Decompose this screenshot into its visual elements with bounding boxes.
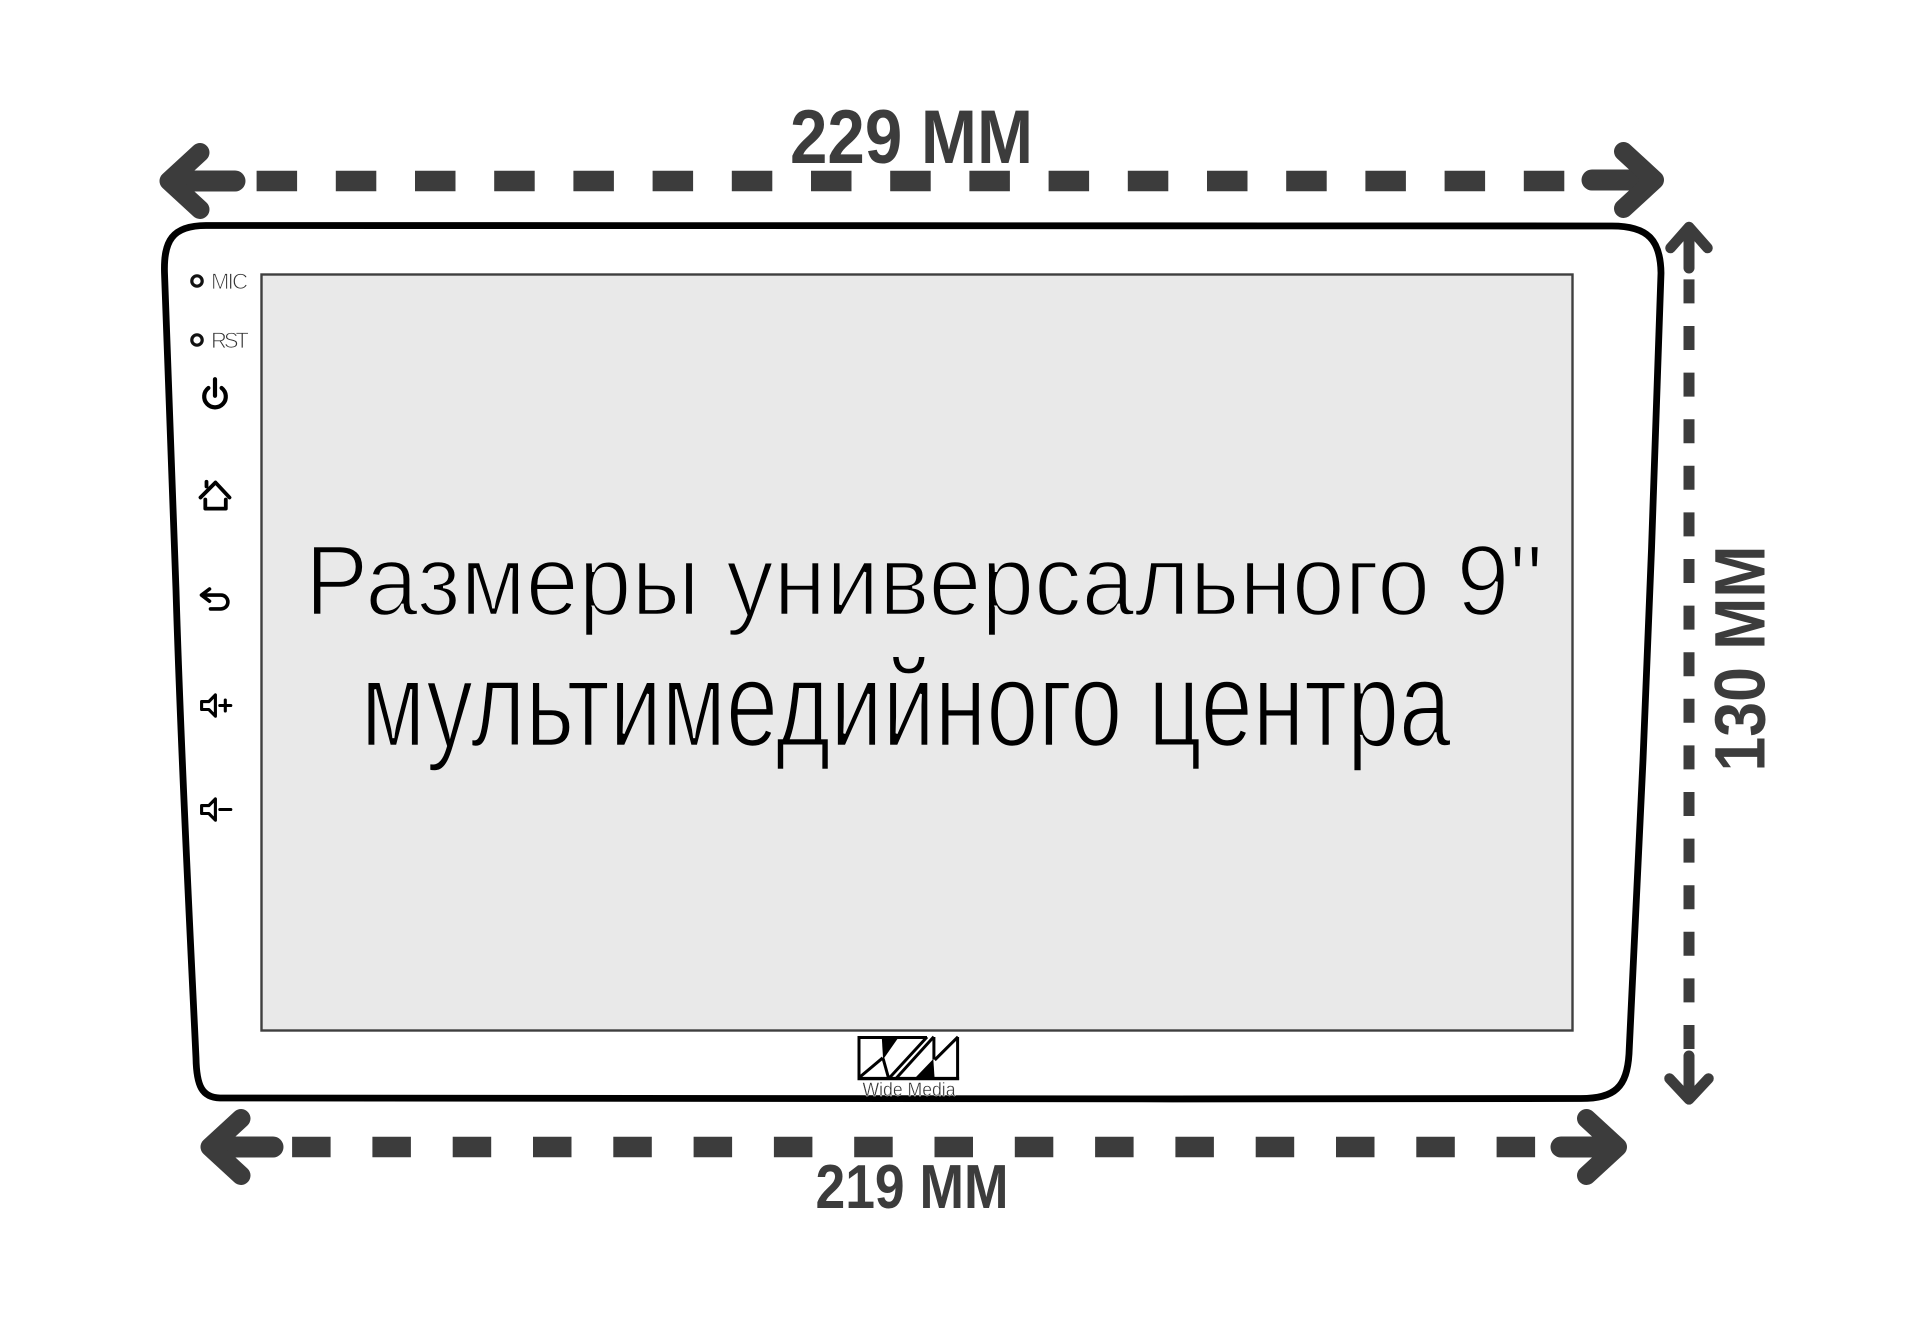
svg-text:219 MM: 219 MM [816,1153,1009,1222]
svg-text:мультимедийного центра: мультимедийного центра [361,636,1451,772]
svg-text:MIC: MIC [211,269,248,294]
svg-text:130 MM: 130 MM [1702,546,1781,772]
svg-text:229 MM: 229 MM [790,95,1033,180]
svg-text:RST: RST [211,328,249,353]
svg-text:Wide Media: Wide Media [863,1080,956,1101]
svg-text:Размеры универсального 9": Размеры универсального 9" [305,525,1543,637]
